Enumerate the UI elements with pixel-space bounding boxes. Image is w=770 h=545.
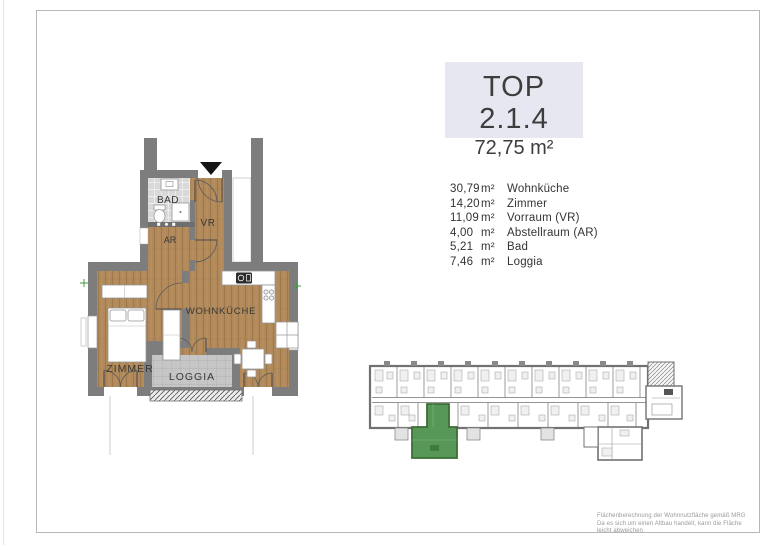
room-list-row: 5,21 m² Bad (450, 240, 598, 255)
room-list-row: 4,00 m² Abstellraum (AR) (450, 226, 598, 241)
room-name: Loggia (507, 255, 598, 270)
floor-plan: BAD VR AR ZIMMER WOHNKÜCHE LOGGIA (80, 138, 301, 455)
room-name: Zimmer (507, 197, 598, 212)
neighbour-shaft (233, 178, 251, 262)
overview-right-annex (646, 362, 682, 419)
sheet: BAD VR AR ZIMMER WOHNKÜCHE LOGGIA (0, 0, 770, 545)
title-block: TOP 2.1.4 72,75 m² (445, 62, 583, 138)
room-list-row: 7,46 m² Loggia (450, 255, 598, 270)
room-area-list: 30,79 m² Wohnküche 14,20 m² Zimmer 11,09… (450, 182, 598, 270)
label-bad: BAD (157, 195, 179, 206)
room-area-value: 5,21 (450, 240, 481, 255)
room-area-unit: m² (481, 182, 507, 197)
room-area-value: 30,79 (450, 182, 481, 197)
plan-graphics: BAD VR AR ZIMMER WOHNKÜCHE LOGGIA (0, 0, 770, 545)
loggia-railing (150, 390, 242, 401)
label-loggia: LOGGIA (169, 371, 215, 383)
room-name: Abstellraum (AR) (507, 226, 598, 241)
apartment-title: TOP 2.1.4 (445, 71, 583, 135)
room-area-unit: m² (481, 197, 507, 212)
room-area-unit: m² (481, 255, 507, 270)
room-name: Vorraum (VR) (507, 211, 598, 226)
footer-line-1: Flächenberechnung der Wohnnutzfläche gem… (597, 513, 757, 521)
room-area-unit: m² (481, 240, 507, 255)
room-list-row: 14,20 m² Zimmer (450, 197, 598, 212)
total-area: 72,75 m² (445, 136, 583, 160)
room-area-value: 14,20 (450, 197, 481, 212)
room-list-row: 30,79 m² Wohnküche (450, 182, 598, 197)
room-area-value: 11,09 (450, 211, 481, 226)
room-name: Wohnküche (507, 182, 598, 197)
label-vr: VR (201, 218, 216, 229)
room-area-value: 7,46 (450, 255, 481, 270)
footer-line-2: Da es sich um einen Altbau handelt, kann… (597, 521, 757, 536)
room-area-unit: m² (481, 211, 507, 226)
label-zimmer: ZIMMER (106, 363, 153, 375)
building-overview-map (370, 361, 682, 460)
survey-marker-icon (80, 279, 88, 287)
room-name: Bad (507, 240, 598, 255)
label-wohnkueche: WOHNKÜCHE (186, 306, 257, 317)
room-list-row: 11,09 m² Vorraum (VR) (450, 211, 598, 226)
footer-note: Flächenberechnung der Wohnnutzfläche gem… (597, 513, 757, 536)
overview-lower-wing (584, 427, 642, 460)
entrance-arrow-icon (200, 162, 222, 175)
room-area-value: 4,00 (450, 226, 481, 241)
room-area-unit: m² (481, 226, 507, 241)
bed (108, 308, 146, 362)
label-ar: AR (164, 235, 177, 245)
